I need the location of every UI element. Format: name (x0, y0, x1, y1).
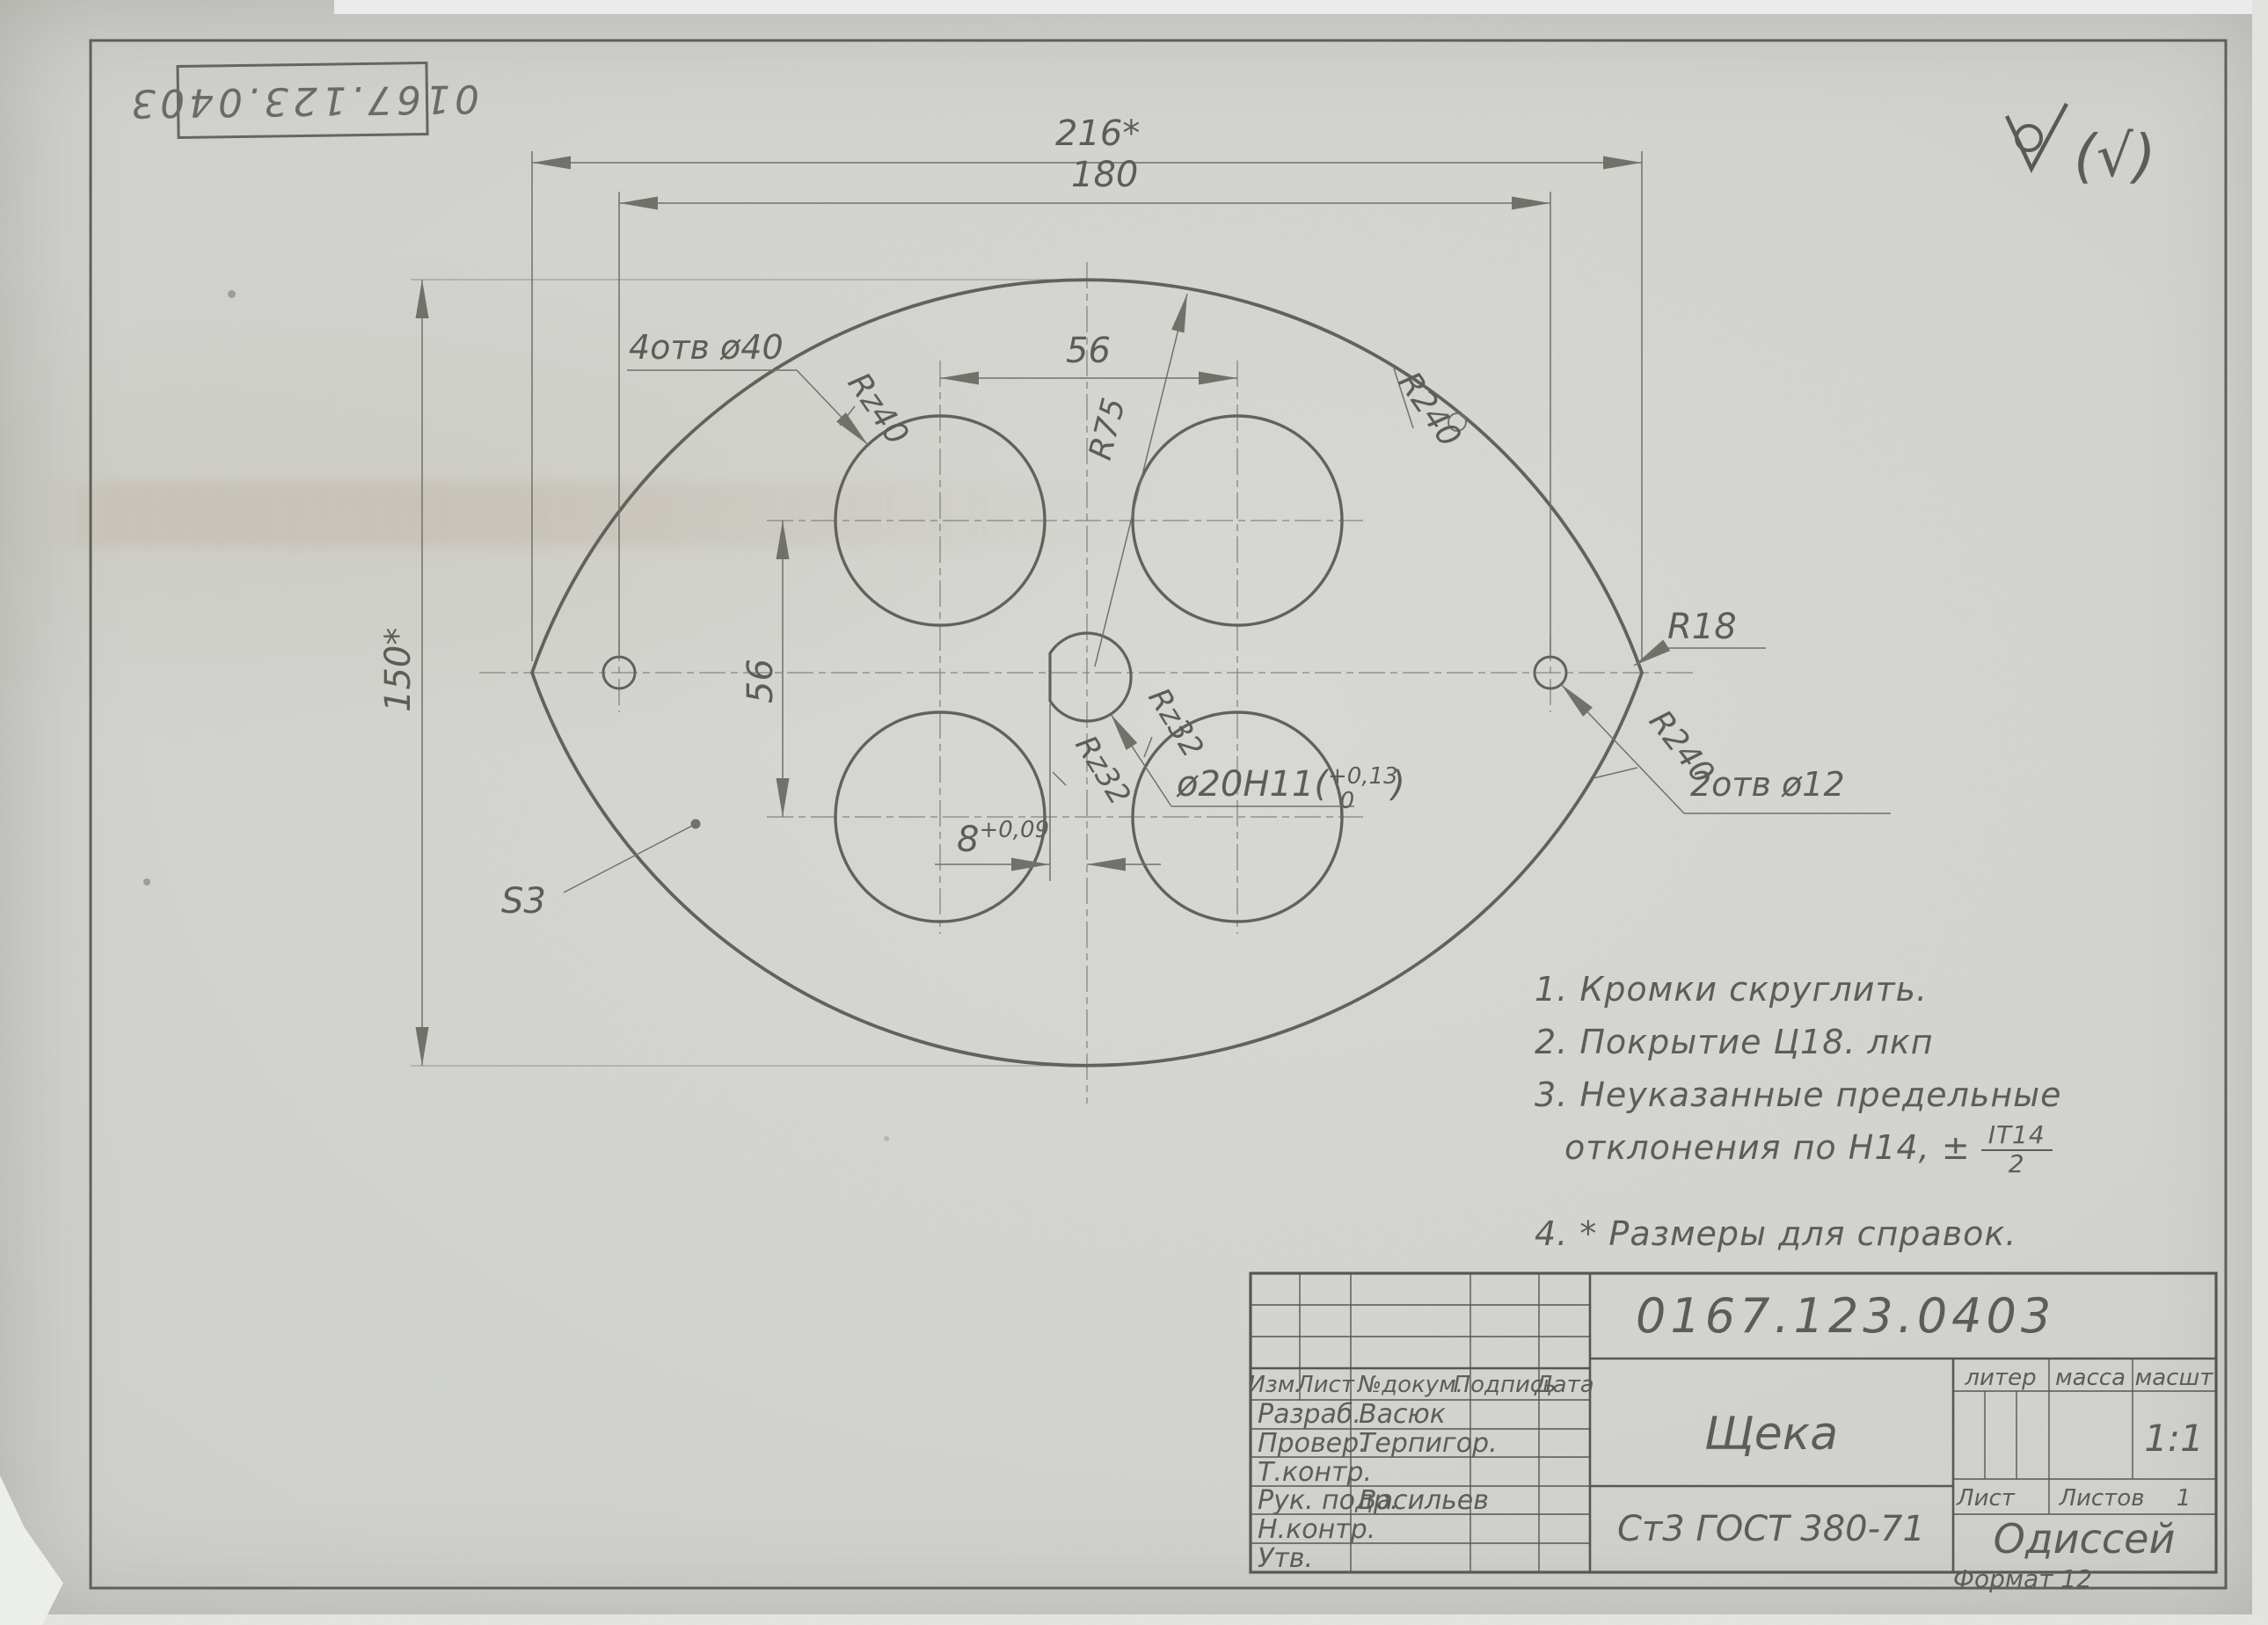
dim-8-value: 8 (957, 820, 979, 860)
bracketed-check-mark: (√) (2074, 122, 2156, 190)
dimension-labels: 216* 180 150* 56 56 4отв ø40 2отв ø12 R1… (378, 113, 1845, 922)
note-3-continued: отклонения по Н14, ±IT142 (1535, 1121, 2097, 1177)
tb-col-massa: масса (2055, 1365, 2126, 1391)
dim-r75: R75 (1083, 395, 1133, 464)
tb-sheets-label: Листов (2058, 1485, 2144, 1512)
dim-56-left: 56 (740, 659, 781, 703)
tb-header-data: Дата (1534, 1372, 1593, 1398)
dimension-arrows (416, 157, 1671, 1067)
dim-56-top: 56 (1066, 331, 1111, 371)
callout-4-holes: 4отв ø40 (629, 328, 784, 367)
center-hole-tol-lower: 0 (1340, 788, 1355, 814)
tb-sheet-label: Лист (1956, 1485, 2016, 1512)
roughness-rz40: Rz40 (841, 367, 915, 452)
tb-header-list: Лист (1295, 1372, 1355, 1398)
technical-notes: 1. Кромки скруглить. 2. Покрытие Ц18. лк… (1535, 963, 2097, 1260)
title-block-text: Изм. Лист №докум. Подпись Дата Разраб. В… (1248, 1288, 2213, 1593)
tb-material: Ст3 ГОСТ 380-71 (1617, 1509, 1925, 1549)
tb-header-izm: Изм. (1248, 1372, 1302, 1398)
tb-role-utv: Утв. (1258, 1543, 1313, 1574)
surface-finish-marks: (√) (2007, 104, 2156, 190)
centerlines (479, 262, 1697, 1104)
tb-role-tkontr: Т.контр. (1258, 1457, 1372, 1488)
note-2: 2. Покрытие Ц18. лкп (1535, 1016, 2097, 1068)
note-3b-text: отклонения по Н14, ± (1564, 1128, 1971, 1167)
tb-role-prover: Провер. (1258, 1428, 1367, 1459)
dim-8-tolerance: +0,09 (979, 817, 1049, 843)
tb-header-docnum: №докум. (1356, 1372, 1463, 1398)
center-hole-tol-upper: +0,13 (1328, 763, 1398, 790)
s3-leader-dot (691, 820, 701, 829)
dim-flat-8: 8+0,09 (957, 817, 1049, 860)
dim-thickness-s3: S3 (501, 881, 546, 922)
tb-col-masshtab: масшт (2135, 1365, 2214, 1391)
dim-180: 180 (1071, 155, 1138, 195)
sheet-frame (91, 40, 2226, 1588)
center-hole-close: ) (1389, 764, 1405, 805)
tolerance-fraction: IT142 (1981, 1122, 2053, 1178)
tb-scale-value: 1:1 (2144, 1417, 2204, 1460)
tb-role-nkontr: Н.контр. (1258, 1514, 1375, 1545)
fraction-denominator: 2 (1981, 1151, 2053, 1178)
dim-r18: R18 (1667, 607, 1737, 647)
dim-216: 216* (1055, 113, 1140, 154)
tb-name-prover: Терпигор. (1359, 1428, 1498, 1459)
tb-role-razrab: Разраб. (1258, 1399, 1361, 1430)
note-1: 1. Кромки скруглить. (1535, 963, 2097, 1016)
tb-part-name: Щека (1704, 1408, 1838, 1461)
tb-format-note: Формат 12 (1953, 1564, 2092, 1593)
tb-doc-number: 0167.123.0403 (1636, 1288, 2055, 1344)
roughness-circle-icon (2016, 126, 2041, 150)
fraction-numerator: IT14 (1981, 1122, 2053, 1151)
roughness-rz32-a: Rz32 (1141, 682, 1210, 764)
drawing-sheet: 0167.123.0403 (0, 0, 2268, 1625)
center-hole-with-flat (1050, 633, 1131, 721)
tb-name-razrab: Васюк (1359, 1399, 1446, 1430)
tb-col-liter: литер (1964, 1365, 2036, 1391)
tb-sheets-value: 1 (2177, 1485, 2191, 1512)
tb-organization: Одиссей (1994, 1515, 2176, 1563)
note-3: 3. Неуказанные предельные (1535, 1068, 2097, 1121)
drawing-canvas: 216* 180 150* 56 56 4отв ø40 2отв ø12 R1… (0, 0, 2268, 1625)
dim-r240-bottom: R240 (1642, 703, 1721, 791)
dim-150: 150* (378, 628, 419, 712)
center-hole-label: ø20Н11( (1176, 764, 1330, 805)
tb-name-rukpodr: Васильев (1359, 1485, 1489, 1516)
note-4: 4. * Размеры для справок. (1535, 1207, 2097, 1260)
